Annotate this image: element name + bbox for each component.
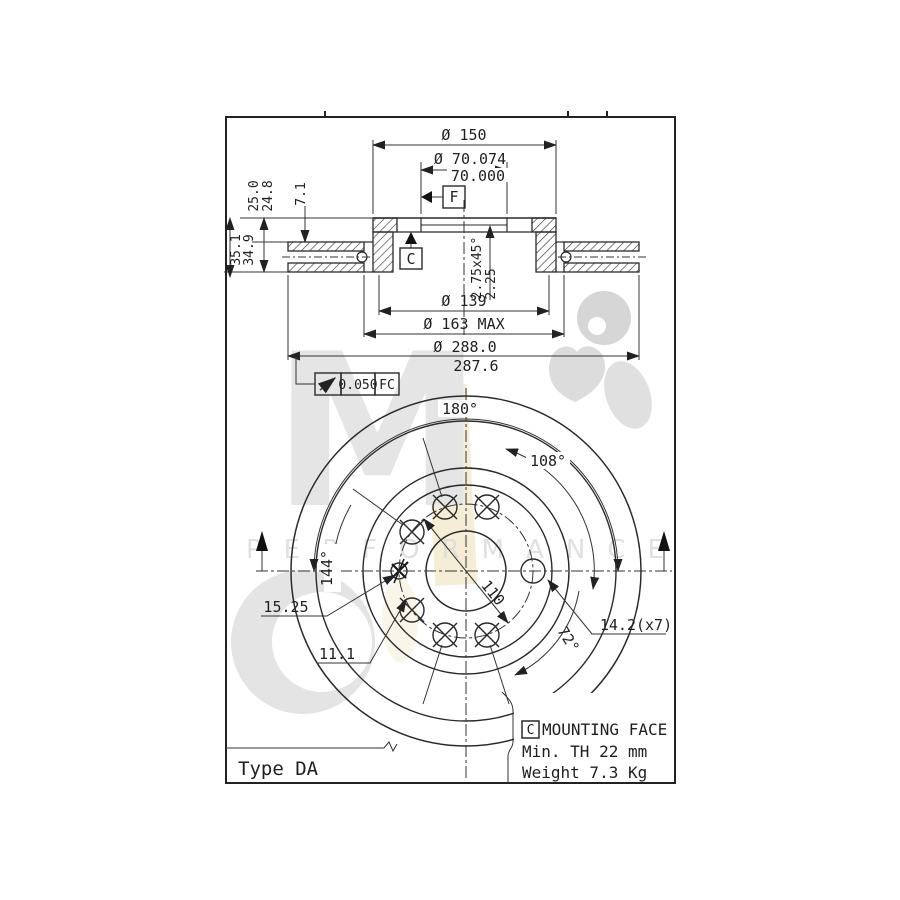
technical-drawing-page: M PERFORMANCE [0, 0, 900, 900]
left-flange-corner [373, 218, 397, 232]
locating-dim1-label: 15.25 [263, 598, 308, 616]
watermark-blob2-icon [595, 355, 660, 436]
datum-f-label: F [449, 188, 458, 206]
angle-180-label: 180° [442, 400, 478, 418]
angle-144-label: 144° [318, 550, 336, 586]
min-thickness-label: Min. TH 22 mm [522, 742, 647, 761]
bolt-hole-crossed [475, 623, 499, 647]
datum-triangle-icon [405, 232, 417, 244]
left-ring-top-plate [288, 242, 364, 251]
watermark-swirl-hole [588, 317, 606, 335]
arc-108 [506, 449, 594, 589]
left-ring-bottom-plate [288, 263, 364, 272]
mount-datum-label: C [527, 723, 535, 738]
dim-d150-label: Ø 150 [441, 126, 486, 144]
right-flange-corner [532, 218, 556, 232]
fcf-value-label: 0.050 [338, 378, 377, 393]
type-label: Type DA [238, 758, 319, 780]
right-hat-wall [536, 232, 556, 272]
dim-d288-lower-label: 287.6 [453, 357, 498, 375]
hole-dia-label: 14.2(x7) [600, 616, 672, 634]
watermark-swirl-icon [577, 291, 631, 345]
dim-d139-label: Ø 139 [441, 292, 486, 310]
dim-thickness-upper: 25.0 [247, 180, 262, 211]
dim-d288-upper-label: Ø 288.0 [433, 338, 496, 356]
fcf-datum-label: FC [379, 378, 395, 393]
bolt-hole-crossed [433, 623, 457, 647]
dim-bore-lower-label: 70.000 [451, 167, 505, 185]
datum-c-label: C [406, 250, 415, 268]
break-line-right [502, 692, 513, 783]
mount-title-label: MOUNTING FACE [542, 720, 667, 739]
weight-label: Weight 7.3 Kg [522, 763, 647, 782]
drawing-canvas: M PERFORMANCE [0, 0, 900, 900]
left-hat-wall [373, 232, 393, 272]
datum-triangle-icon [421, 191, 432, 203]
dim-overall-lower: 34.9 [242, 234, 257, 265]
locating-dim2-label: 11.1 [319, 645, 355, 663]
angle-72-label: 72° [553, 623, 583, 656]
dim-bore-upper-label: Ø 70.074 [434, 150, 506, 168]
dim-d163-label: Ø 163 MAX [423, 315, 504, 333]
bolt-circle-dia-label: 110 [477, 577, 508, 609]
watermark-blob-icon [549, 346, 605, 402]
dim-thickness-lower: 24.8 [261, 180, 276, 211]
notes: Type DA C MOUNTING FACE Min. TH 22 mm We… [238, 720, 667, 782]
right-ring-top-plate [564, 242, 639, 251]
angle-108-label: 108° [530, 452, 566, 470]
chamfer-note-1: 2.75x45° [470, 237, 485, 300]
right-ring-bottom-plate [564, 263, 639, 272]
section-top-dims: Ø 150 Ø 70.074 70.000 F [373, 126, 556, 214]
dim-flange-depth: 7.1 [294, 182, 309, 205]
break-line-left [226, 742, 397, 751]
section-datum-c: C 2.75x45° 2.25 [400, 226, 499, 300]
